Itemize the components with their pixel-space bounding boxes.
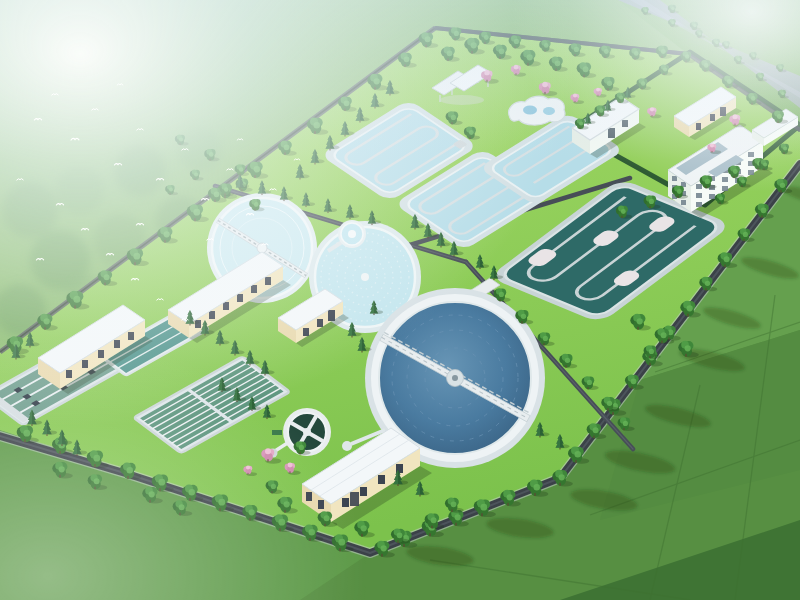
atmospheric-haze: [0, 0, 800, 600]
treatment-plant-rendering: Aerial 3D rendering of a wastewater trea…: [0, 0, 800, 600]
